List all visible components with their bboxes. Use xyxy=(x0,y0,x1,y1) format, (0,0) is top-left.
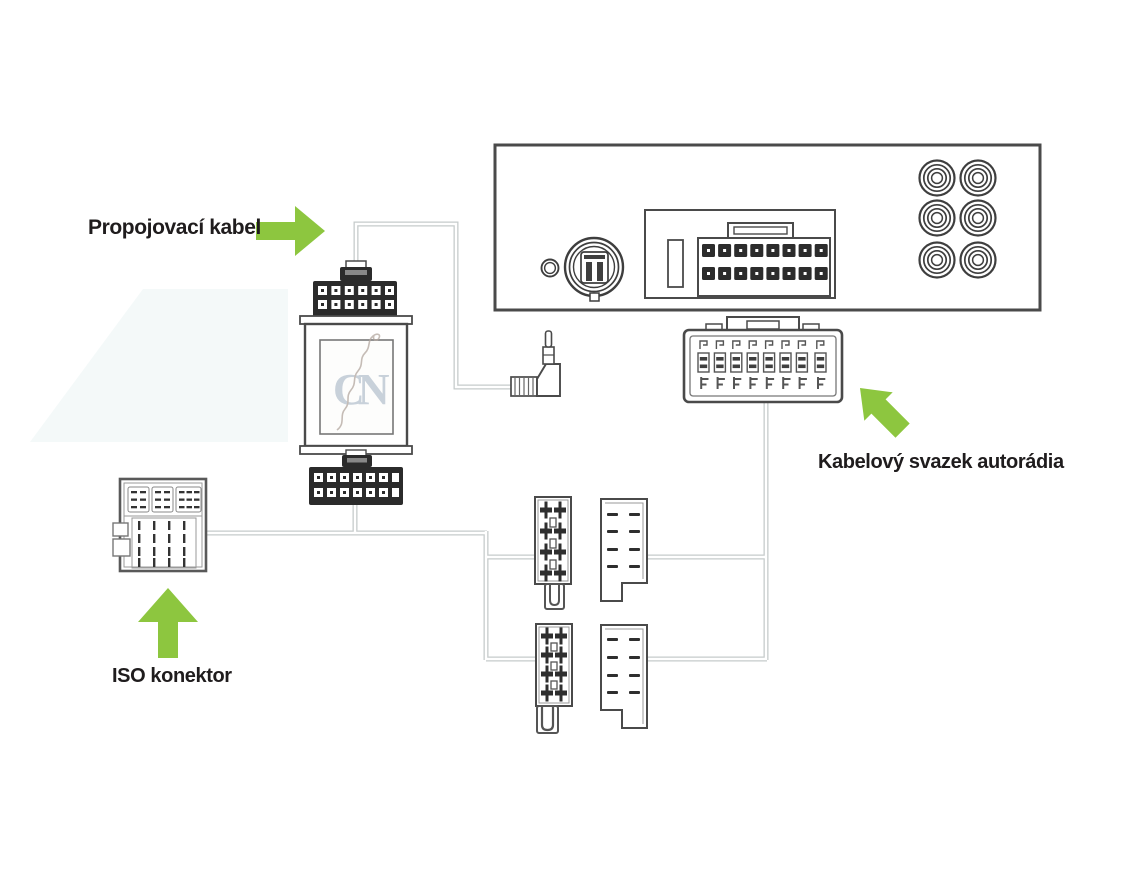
arrow-radio-harness-icon xyxy=(860,388,910,438)
aux-jack-plug xyxy=(511,331,560,396)
arrow-iso-connector-icon xyxy=(138,588,198,658)
adapter-bottom-connector-14pin xyxy=(309,450,403,505)
radio-harness-plug xyxy=(684,317,842,402)
speaker-connector-male-lower xyxy=(536,624,572,733)
label-radio-harness: Kabelový svazek autorádia xyxy=(818,451,1064,474)
background-watermark-shape xyxy=(30,289,288,442)
adapter-interface-box: CN xyxy=(300,261,412,505)
radio-rear-panel xyxy=(495,145,1040,310)
label-connecting-cable: Propojovací kabel xyxy=(88,216,261,240)
main-socket-panel xyxy=(645,210,835,298)
arrow-connecting-cable-icon xyxy=(256,206,325,256)
label-iso-connector: ISO konektor xyxy=(112,665,232,688)
speaker-connector-male-upper xyxy=(535,497,571,609)
diagram-artwork: CN xyxy=(0,0,1139,872)
speaker-connector-female-upper xyxy=(601,499,647,601)
speaker-connector-female-lower xyxy=(601,625,647,728)
adapter-top-connector-12pin xyxy=(313,261,397,317)
iso-connector-block xyxy=(113,479,206,571)
wiring-diagram: CN xyxy=(0,0,1139,872)
adapter-body: CN xyxy=(300,316,412,454)
svg-text:CN: CN xyxy=(333,365,390,414)
